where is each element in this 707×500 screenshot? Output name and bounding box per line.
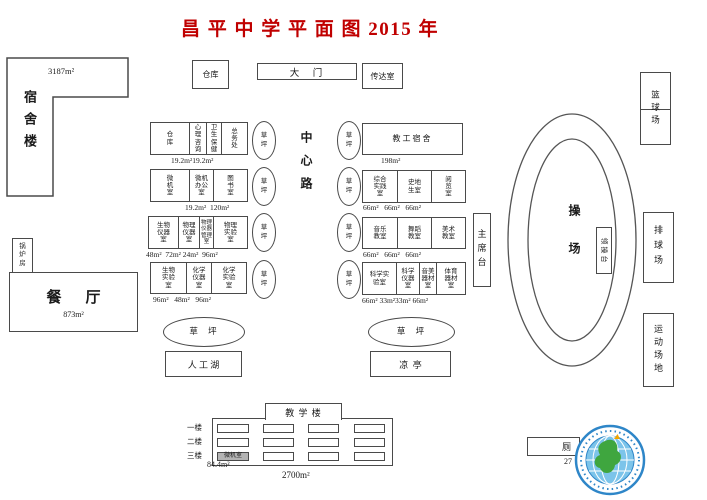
lawn-oval-large: 草 坪	[368, 317, 455, 347]
floor-label-1: 一楼	[187, 422, 202, 433]
pavilion: 凉 亭	[370, 351, 451, 377]
basketball-court: 篮球场	[640, 72, 671, 145]
lawn-oval: 草 坪	[252, 167, 276, 206]
left-room-row-2: 微 机 室 微机 办公 室 图 书 室	[150, 169, 248, 202]
floor-label-2: 二楼	[187, 436, 202, 447]
row-areas: 48m² 72m² 24m² 96m²	[146, 250, 218, 259]
lawn-label: 草 坪	[261, 132, 268, 149]
teaching-total-area: 2700m²	[282, 470, 310, 480]
classroom-rect	[308, 452, 339, 461]
floor-label-3: 三楼	[187, 450, 202, 461]
lawn-oval: 草 坪	[337, 167, 361, 206]
left-room-row-4: 生物 实验 室 化学 仪器 室 化学 实验 室	[150, 262, 247, 294]
right-room-row-3: 音乐 教室 舞蹈 教室 美术 教室	[362, 217, 466, 249]
volleyball-court-label: 排球场	[652, 225, 665, 270]
dormitory-label: 宿舍楼	[20, 90, 39, 156]
toilet-area: 27	[564, 457, 572, 466]
lawn-label: 草 坪	[346, 224, 353, 241]
room-cell: 微 机 室	[151, 170, 189, 201]
toilet: 厕	[527, 437, 580, 456]
classroom-rect	[354, 438, 385, 447]
row-areas: 19.2m² 120m²	[185, 203, 229, 212]
classroom-rect	[263, 438, 294, 447]
lawn-label: 草 坪	[261, 271, 268, 288]
teaching-building-tab: 教 学 楼	[265, 403, 342, 420]
room-cell: 物理 仪器 管理 室	[199, 217, 213, 248]
classroom-rect	[308, 438, 339, 447]
room-cell: 总 务 处	[221, 123, 247, 154]
school-logo	[574, 424, 646, 496]
room-cell: 生物 实验 室	[151, 263, 186, 293]
basketball-court-label: 篮球场	[650, 90, 662, 128]
warehouse-label: 仓库	[203, 69, 219, 80]
classroom-rect	[354, 424, 385, 433]
pavilion-label: 凉 亭	[399, 358, 422, 371]
classroom-rect	[354, 452, 385, 461]
lawn-label: 草 坪	[397, 326, 426, 337]
room-cell: 科学 仪器 室	[396, 263, 419, 294]
room-cell: 卫 生 保 健	[206, 123, 221, 154]
room-cell: 图 书 室	[213, 170, 247, 201]
classroom-rect	[263, 452, 294, 461]
room-cell: 物理 仪器 室	[178, 217, 199, 248]
lawn-oval: 草 坪	[337, 121, 361, 160]
boiler-room-label: 锅 炉 房	[19, 243, 26, 268]
computer-room-area: 84.4m²	[207, 460, 230, 469]
reception-label: 传达室	[371, 71, 395, 82]
room-cell: 舞蹈 教室	[397, 218, 431, 248]
room-cell: 化学 仪器 室	[186, 263, 211, 293]
school-floor-plan: 昌 平 中 学 平 面 图 2015 年 3187m² 宿舍楼 仓库 大 门 传…	[0, 0, 707, 500]
lawn-label: 草 坪	[346, 132, 353, 149]
lawn-label: 草 坪	[189, 326, 218, 337]
center-road-label: 中心路	[298, 131, 315, 200]
room-cell: 体育 器材 室	[436, 263, 465, 294]
lawn-label: 草 坪	[346, 178, 353, 195]
room-cell: 生物 仪器 室	[149, 217, 178, 248]
volleyball-court: 排球场	[643, 212, 674, 283]
room-cell: 音乐 教室	[363, 218, 397, 248]
room-cell: 史地 生室	[397, 171, 431, 202]
toilet-label: 厕	[562, 440, 571, 453]
lawn-label: 草 坪	[261, 224, 268, 241]
page-title: 昌 平 中 学 平 面 图 2015 年	[145, 14, 475, 41]
lawn-oval: 草 坪	[252, 121, 276, 160]
main-gate: 大 门	[257, 63, 357, 80]
dining-hall-area: 873m²	[63, 310, 84, 319]
classroom-rect	[263, 424, 294, 433]
exercise-platform: 领操台	[596, 227, 612, 274]
lawn-oval: 草 坪	[337, 213, 361, 252]
rostrum: 主席台	[473, 213, 491, 287]
computer-room-label: 微机室	[224, 453, 242, 460]
lawn-oval: 草 坪	[337, 260, 361, 299]
room-cell: 综合 实践 室	[363, 171, 397, 202]
sports-field-label: 运动场地	[652, 324, 665, 376]
row-areas: 66m² 33m²33m² 66m²	[362, 296, 428, 305]
row-areas: 19.2m²19.2m²	[171, 156, 213, 165]
row-areas: 96m² 48m² 96m²	[153, 295, 211, 304]
room-cell: 科学实 验室	[363, 263, 396, 294]
room-cell: 教工宿舍	[363, 124, 462, 154]
boiler-room: 锅 炉 房	[12, 238, 33, 273]
row-areas: 66m² 66m² 66m²	[363, 203, 421, 212]
warehouse-box: 仓库	[192, 60, 229, 89]
exercise-platform-label: 领操台	[599, 237, 609, 264]
dining-hall: 餐厅 873m²	[9, 272, 138, 332]
left-room-row-1: 仓 库 心 理 咨 询 卫 生 保 健 总 务 处	[150, 122, 248, 155]
row-areas: 66m² 66m² 66m²	[363, 250, 421, 259]
classroom-rect	[308, 424, 339, 433]
left-room-row-3: 生物 仪器 室 物理 仪器 室 物理 仪器 管理 室 物理 实验 室	[148, 216, 248, 249]
lawn-oval: 草 坪	[252, 213, 276, 252]
playground-label: 操场	[566, 204, 583, 280]
artificial-lake-label: 人 工 湖	[188, 358, 220, 371]
main-gate-label: 大 门	[290, 65, 325, 79]
lawn-label: 草 坪	[261, 178, 268, 195]
room-cell: 物理 实验 室	[213, 217, 247, 248]
row-areas: 198m²	[381, 156, 400, 165]
right-room-row-4: 科学实 验室 科学 仪器 室 音美 器材 室 体育 器材 室	[362, 262, 466, 295]
right-room-row-2: 综合 实践 室 史地 生室 阅 览 室	[362, 170, 466, 203]
room-cell: 阅 览 室	[431, 171, 465, 202]
room-cell: 心 理 咨 询	[189, 123, 206, 154]
lawn-oval: 草 坪	[252, 260, 276, 299]
room-cell: 音美 器材 室	[419, 263, 436, 294]
lawn-label: 草 坪	[346, 271, 353, 288]
classroom-rect	[217, 438, 249, 447]
room-cell: 微机 办公 室	[189, 170, 213, 201]
lawn-oval-large: 草 坪	[163, 317, 245, 347]
sports-field: 运动场地	[643, 313, 674, 387]
dormitory-area: 3187m²	[48, 66, 74, 76]
classroom-rect	[217, 424, 249, 433]
reception-room: 传达室	[362, 63, 403, 89]
teaching-building-label: 教 学 楼	[285, 406, 322, 419]
artificial-lake: 人 工 湖	[165, 351, 242, 377]
room-cell: 美术 教室	[431, 218, 465, 248]
staff-dormitory: 教工宿舍	[362, 123, 463, 155]
room-cell: 仓 库	[151, 123, 189, 154]
dining-hall-label: 餐厅	[22, 286, 124, 307]
rostrum-label: 主席台	[476, 229, 489, 271]
room-cell: 化学 实验 室	[211, 263, 246, 293]
